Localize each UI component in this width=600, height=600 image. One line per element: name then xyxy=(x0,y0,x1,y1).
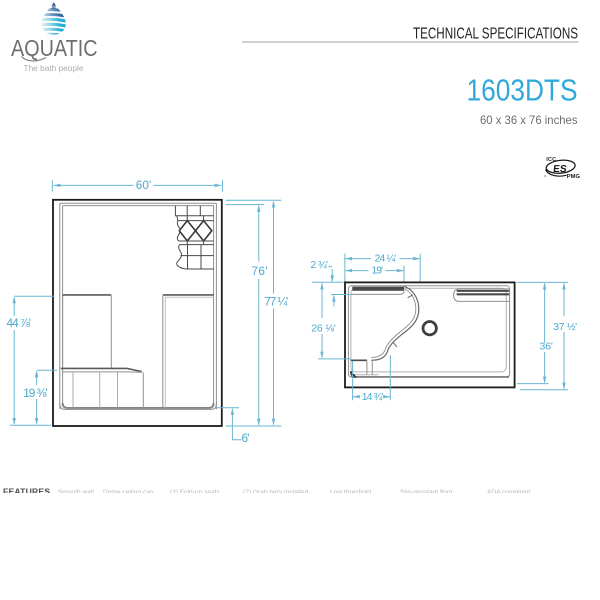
svg-text:19': 19' xyxy=(372,265,384,277)
svg-text:AQUATIC: AQUATIC xyxy=(11,35,98,61)
svg-text:TECHNICAL SPECIFICATIONS: TECHNICAL SPECIFICATIONS xyxy=(413,26,578,43)
svg-text:c: c xyxy=(545,174,547,178)
svg-text:60 x 36 x 76 inches: 60 x 36 x 76 inches xyxy=(480,113,578,127)
svg-text:60': 60' xyxy=(136,178,152,192)
svg-text:ES: ES xyxy=(553,164,568,175)
svg-text:24 ¼': 24 ¼' xyxy=(375,252,397,264)
svg-text:76': 76' xyxy=(252,264,268,278)
svg-text:PMG: PMG xyxy=(567,174,581,180)
svg-text:........: ........ xyxy=(550,175,559,178)
svg-text:1603DTS: 1603DTS xyxy=(467,72,578,107)
svg-text:14 ¾': 14 ¾' xyxy=(362,391,384,403)
svg-text:44 ⅞': 44 ⅞' xyxy=(7,316,32,330)
svg-text:77 ¼': 77 ¼' xyxy=(264,294,288,308)
svg-text:The bath people: The bath people xyxy=(24,64,85,73)
svg-text:26 ⅛': 26 ⅛' xyxy=(311,323,336,335)
svg-text:6': 6' xyxy=(242,431,250,445)
svg-text:37 ½': 37 ½' xyxy=(553,321,577,333)
svg-text:19 ⅜': 19 ⅜' xyxy=(23,386,48,400)
svg-text:2 ¾': 2 ¾' xyxy=(311,259,329,271)
svg-text:36': 36' xyxy=(539,341,553,353)
